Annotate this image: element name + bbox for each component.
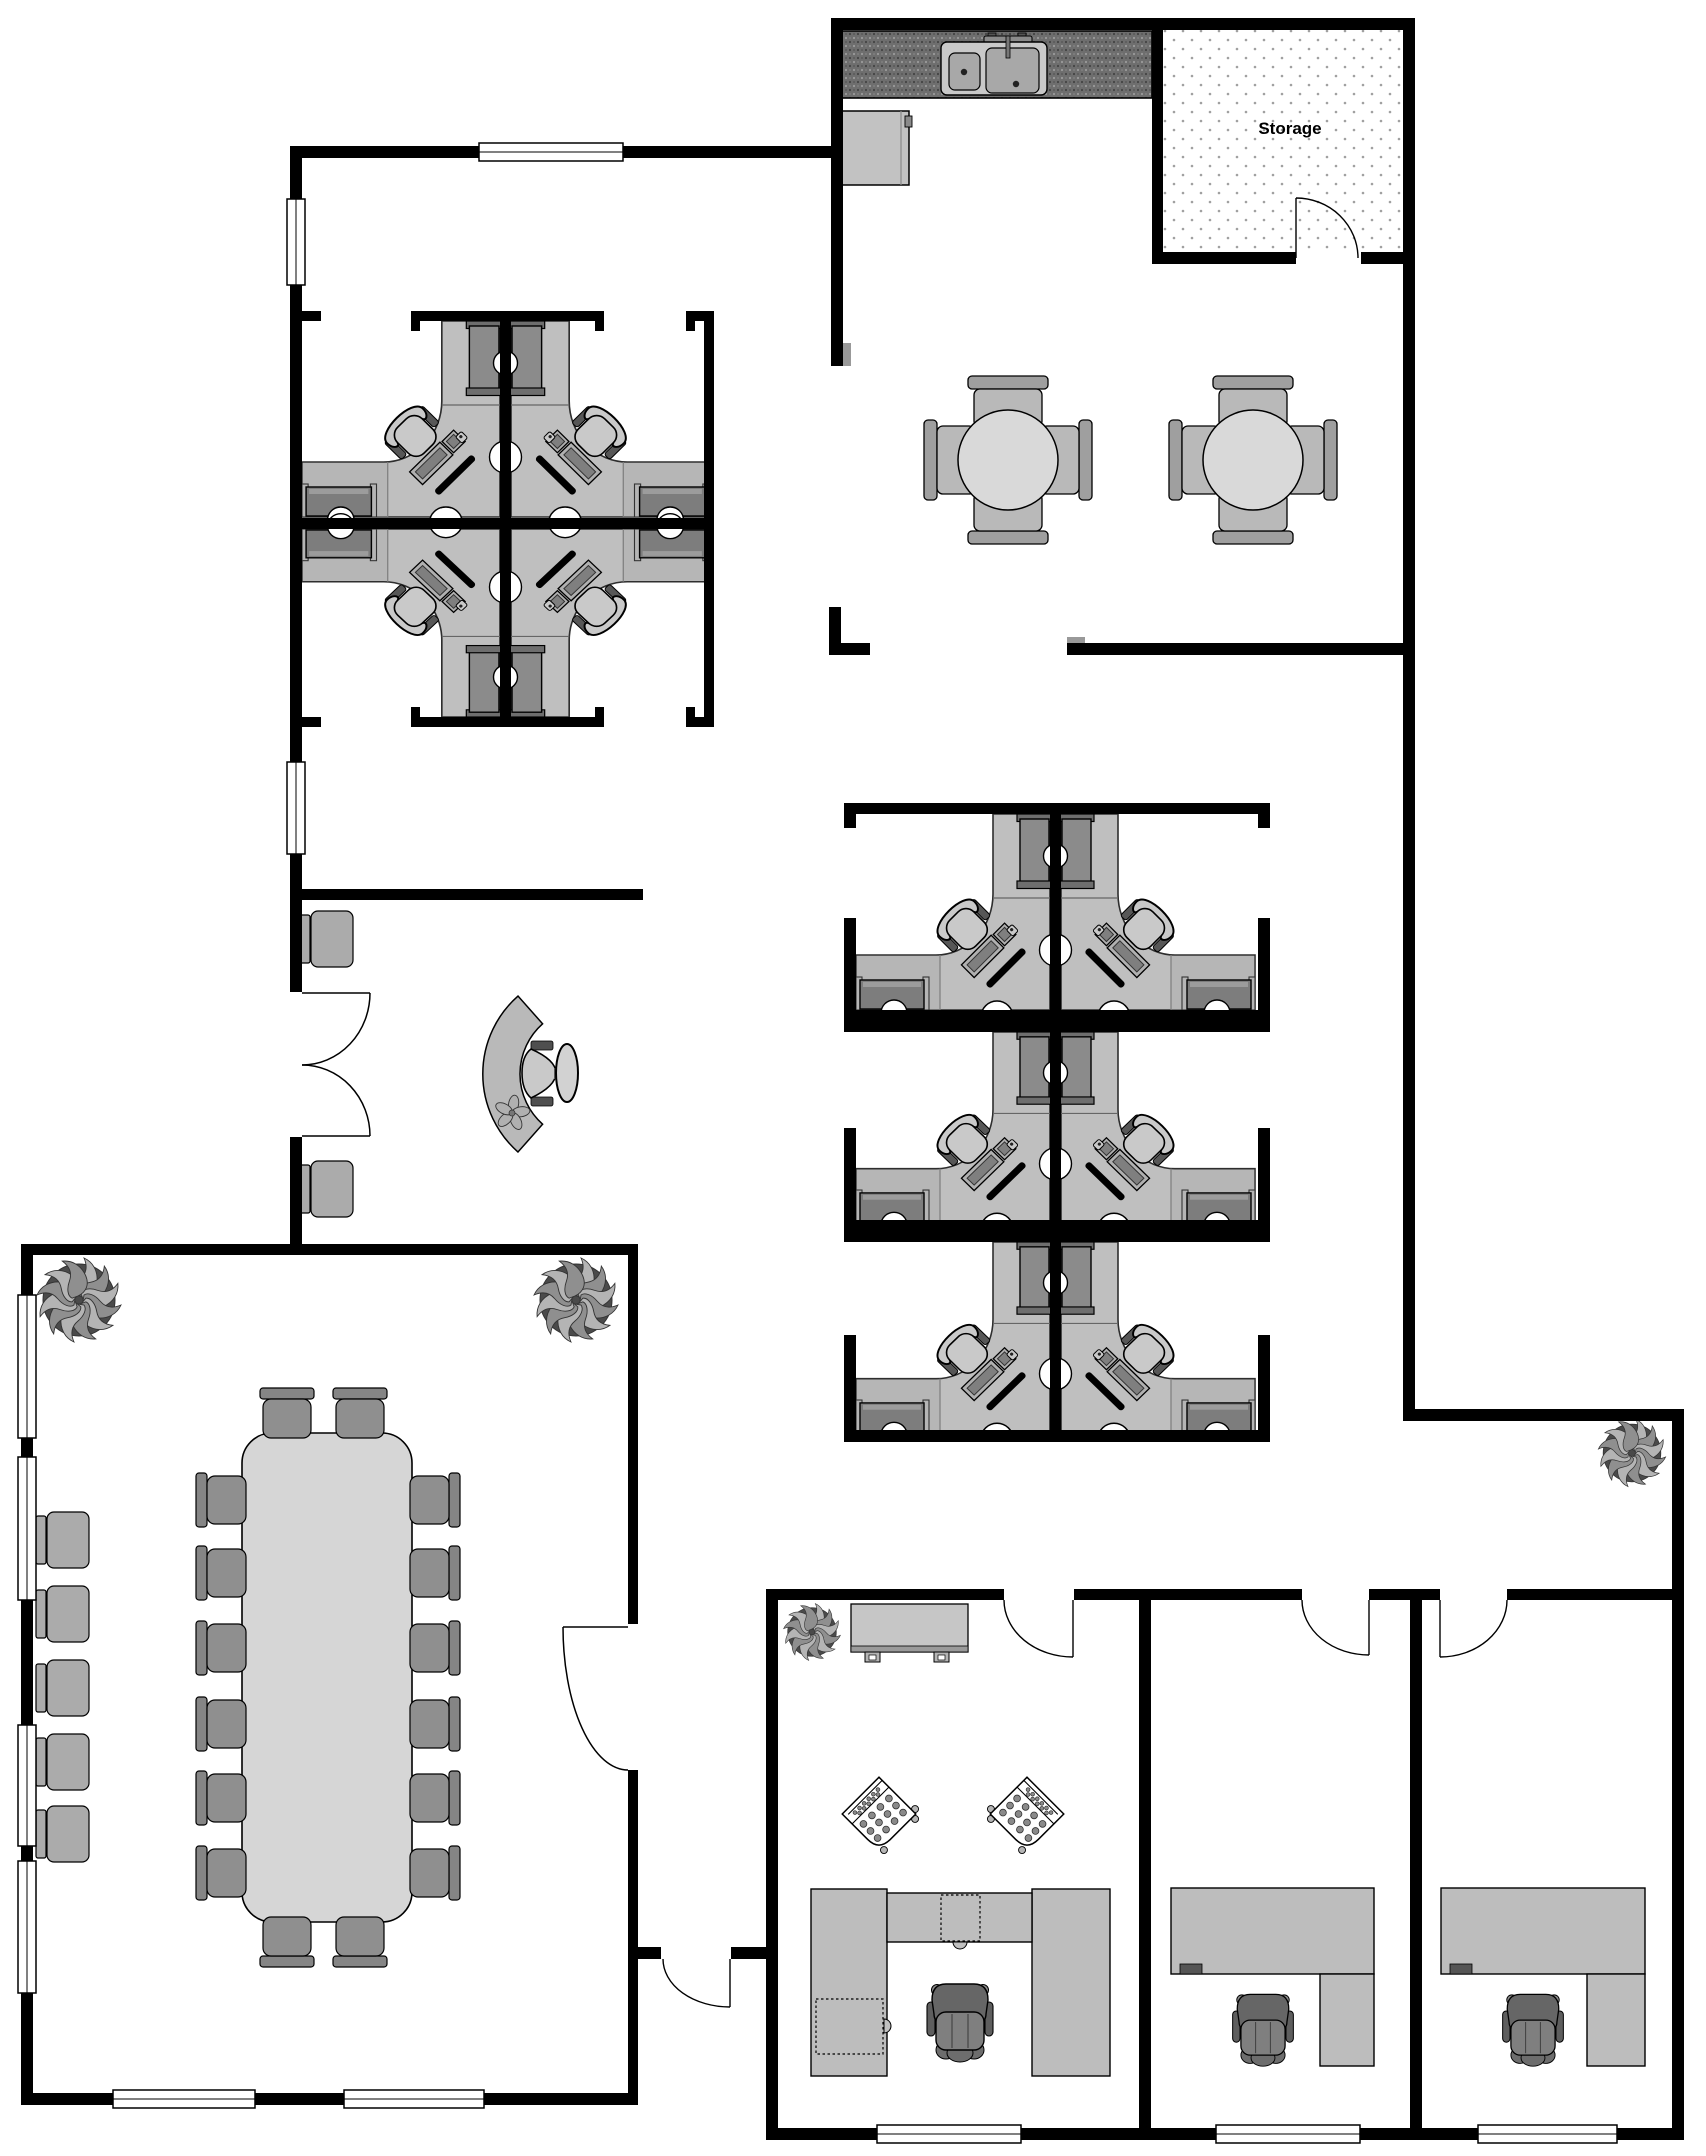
svg-text:Storage: Storage: [1258, 119, 1321, 138]
